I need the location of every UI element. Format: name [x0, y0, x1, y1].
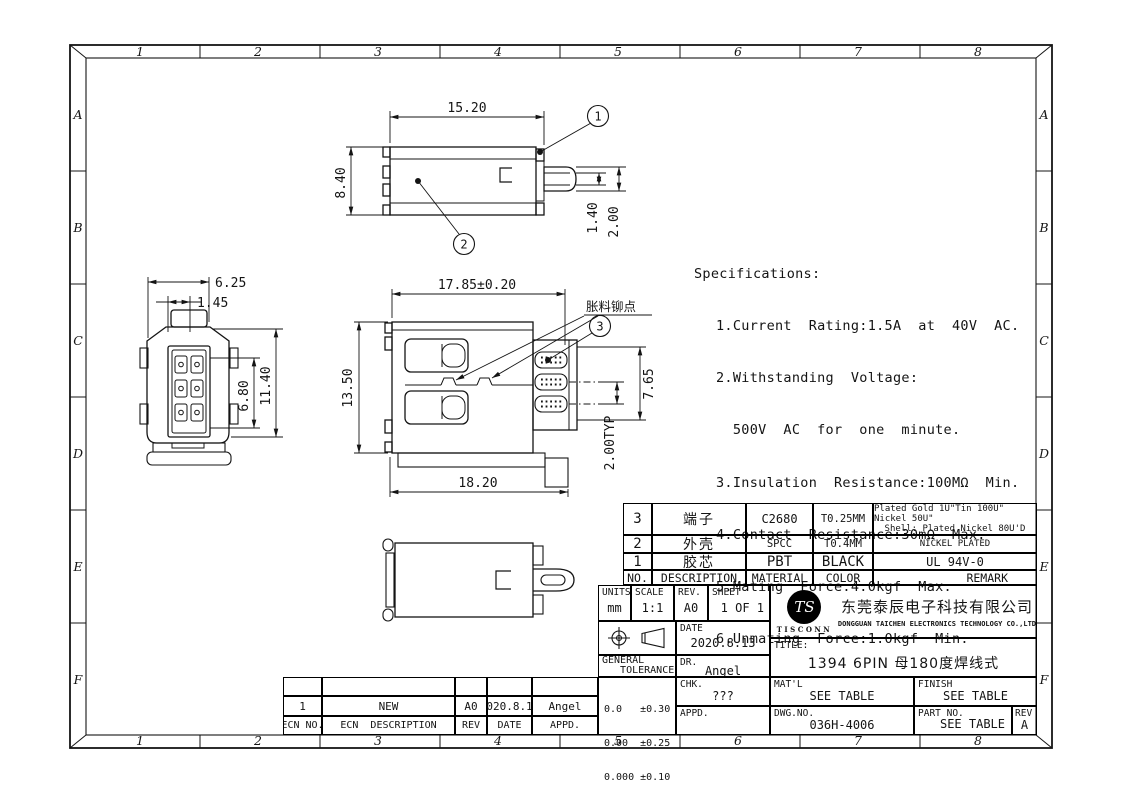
zone-label: F — [1039, 672, 1050, 687]
balloon-3-number: 3 — [596, 320, 603, 334]
zone-label: 6 — [734, 44, 742, 59]
dim-front-height: 11.40 — [259, 366, 274, 405]
zone-label: 6 — [734, 733, 742, 748]
ecn-cell-date: 2020.8.13 — [487, 696, 532, 716]
zone-label: B — [72, 220, 82, 235]
tolerance-line: 0.0 ±0.30 — [604, 704, 675, 715]
zone-label: A — [1038, 107, 1048, 122]
dim-top-height: 8.40 — [334, 167, 349, 198]
top-view — [383, 147, 576, 215]
company-logo: TS TISCONN — [771, 590, 838, 634]
dim-front-tab: 1.45 — [197, 296, 228, 311]
materials-cell-material: SPCC — [746, 535, 813, 553]
zone-label: E — [72, 559, 82, 574]
ecn-empty-cell — [283, 677, 322, 696]
zone-label: 3 — [374, 44, 382, 59]
tolerance-values: 0.0 ±0.30 0.00 ±0.25 0.000 ±0.10 0.° ±5 … — [598, 677, 676, 735]
ecn-header-appd: APPD. — [532, 716, 598, 735]
dwg-no-value: 036H-4006 — [771, 707, 913, 734]
rev2-value: A — [1013, 707, 1036, 734]
zone-label: B — [1038, 220, 1048, 235]
company-name-en: DONGGUAN TAICHEN ELECTRONICS TECHNOLOGY … — [838, 620, 1036, 628]
materials-cell-no: 3 — [623, 503, 652, 535]
company-name-cn: 东莞泰辰电子科技有限公司 — [841, 596, 1033, 617]
rev-value: A0 — [675, 586, 707, 620]
materials-cell-color: T0.4MM — [813, 535, 873, 553]
dim-pitch: 2.00TYP — [603, 415, 618, 470]
zone-label: 7 — [854, 44, 862, 59]
zone-label: C — [73, 333, 83, 348]
rivet-label: 胀料铆点 — [586, 299, 636, 314]
dim-top-width: 15.20 — [447, 101, 486, 116]
zone-label: D — [72, 446, 83, 461]
scale-value: 1:1 — [632, 586, 673, 620]
balloon-2-number: 2 — [460, 238, 467, 252]
zone-label: 1 — [136, 44, 144, 59]
ecn-cell-description: NEW — [322, 696, 455, 716]
dim-side-width: 17.85±0.20 — [438, 278, 516, 293]
dim-side-height: 13.50 — [341, 368, 356, 407]
drawing-title-value: 1394 6PIN 母180度焊线式 — [771, 639, 1036, 676]
materials-cell-description: 外壳 — [652, 535, 746, 553]
spec-line: 1.Current Rating:1.5A at 40V AC. — [716, 318, 1019, 335]
ecn-empty-cell — [487, 677, 532, 696]
zone-label: 7 — [854, 733, 862, 748]
part-no-value: SEE TABLE — [915, 707, 1011, 734]
zone-label: 8 — [974, 733, 982, 748]
materials-cell-no: 1 — [623, 553, 652, 570]
materials-cell-color: T0.25MM — [813, 503, 873, 535]
tolerance-line: 0.00 ±0.25 — [604, 738, 675, 749]
zone-label: F — [73, 672, 84, 687]
projection-symbol-cell — [598, 621, 676, 655]
bottom-view — [383, 539, 574, 621]
spec-line: 3.Insulation Resistance:100MΩ Min. — [716, 475, 1019, 492]
zone-label: A — [72, 107, 82, 122]
ecn-cell-no: 1 — [283, 696, 322, 716]
ecn-cell-rev: A0 — [455, 696, 487, 716]
materials-cell-remark: NICKEL PLATED — [873, 535, 1037, 553]
dim-pin-inner: 1.40 — [586, 202, 601, 233]
zone-label: 4 — [493, 44, 502, 59]
ecn-empty-cell — [455, 677, 487, 696]
materials-cell-color: BLACK — [813, 553, 873, 570]
zone-label: 4 — [493, 733, 502, 748]
chk-value: ??? — [677, 678, 769, 705]
tisconn-logo-icon: TS — [787, 590, 821, 624]
tisconn-logo-text: TISCONN — [777, 625, 833, 634]
dim-front-contact-span: 6.80 — [237, 380, 252, 411]
zone-label: 2 — [253, 44, 262, 59]
materials-header-no: NO. — [623, 570, 652, 585]
front-view — [140, 310, 238, 465]
materials-remark-line2: Shell: Plated Nickel 80U'D — [885, 524, 1026, 534]
general-tolerance-label: GENERAL TOLERANCE — [598, 655, 676, 677]
zone-label: 3 — [374, 733, 382, 748]
ecn-header-description: ECN DESCRIPTION — [322, 716, 455, 735]
zone-label: 2 — [253, 733, 262, 748]
ecn-empty-cell — [532, 677, 598, 696]
dim-term-span: 7.65 — [642, 368, 657, 399]
spec-line: 500V AC for one minute. — [716, 422, 1019, 439]
materials-cell-remark: UL 94V-0 — [873, 553, 1037, 570]
zone-label: D — [1038, 446, 1049, 461]
materials-cell-description: 端子 — [652, 503, 746, 535]
materials-header-remark: REMARK — [873, 570, 1037, 585]
dim-pin-outer: 2.00 — [607, 206, 622, 237]
zone-label: 8 — [974, 44, 982, 59]
balloon-1-number: 1 — [594, 110, 601, 124]
zone-label: 5 — [614, 44, 622, 59]
ecn-header-no: ECN NO. — [283, 716, 322, 735]
zone-label: C — [1039, 333, 1049, 348]
ecn-header-date: DATE — [487, 716, 532, 735]
specifications-title: Specifications: — [694, 266, 1019, 283]
units-value: mm — [599, 586, 630, 620]
ecn-header-rev: REV — [455, 716, 487, 735]
materials-header-color: COLOR — [813, 570, 873, 585]
balloon-3: 3 — [545, 316, 611, 364]
balloon-2: 2 — [415, 178, 475, 255]
ecn-empty-cell — [322, 677, 455, 696]
materials-cell-description: 胶芯 — [652, 553, 746, 570]
materials-cell-no: 2 — [623, 535, 652, 553]
dim-side-base: 18.20 — [458, 476, 497, 491]
dim-front-top: 6.25 — [215, 276, 246, 291]
materials-header-description: DESCRIPTION — [652, 570, 746, 585]
ecn-cell-appd: Angel — [532, 696, 598, 716]
balloon-1: 1 — [537, 106, 609, 156]
company-cell: TS TISCONN 东莞泰辰电子科技有限公司 DONGGUAN TAICHEN… — [770, 585, 1037, 638]
dr-value: Angel — [677, 656, 769, 676]
sheet-value: 1 OF 1 — [709, 586, 769, 620]
tolerance-line: 0.000 ±0.10 — [604, 772, 675, 783]
materials-header-material: MATERIAL — [746, 570, 813, 585]
materials-cell-material: PBT — [746, 553, 813, 570]
finish-value: SEE TABLE — [915, 678, 1036, 705]
drawing-sheet: 1 2 3 4 5 6 7 8 1 2 3 4 5 6 7 8 A B C D … — [0, 0, 1123, 793]
materials-remark-line1: Plated Gold 1U"Tin 100U" Nickel 50U" — [874, 504, 1036, 524]
zone-label: 1 — [136, 733, 144, 748]
projection-symbols-icon — [602, 623, 672, 653]
date-value: 2020.8.13 — [677, 622, 769, 654]
spec-line: 2.Withstanding Voltage: — [716, 370, 1019, 387]
matl-value: SEE TABLE — [771, 678, 913, 705]
zone-label: E — [1038, 559, 1048, 574]
materials-cell-material: C2680 — [746, 503, 813, 535]
appd-value — [677, 707, 769, 734]
